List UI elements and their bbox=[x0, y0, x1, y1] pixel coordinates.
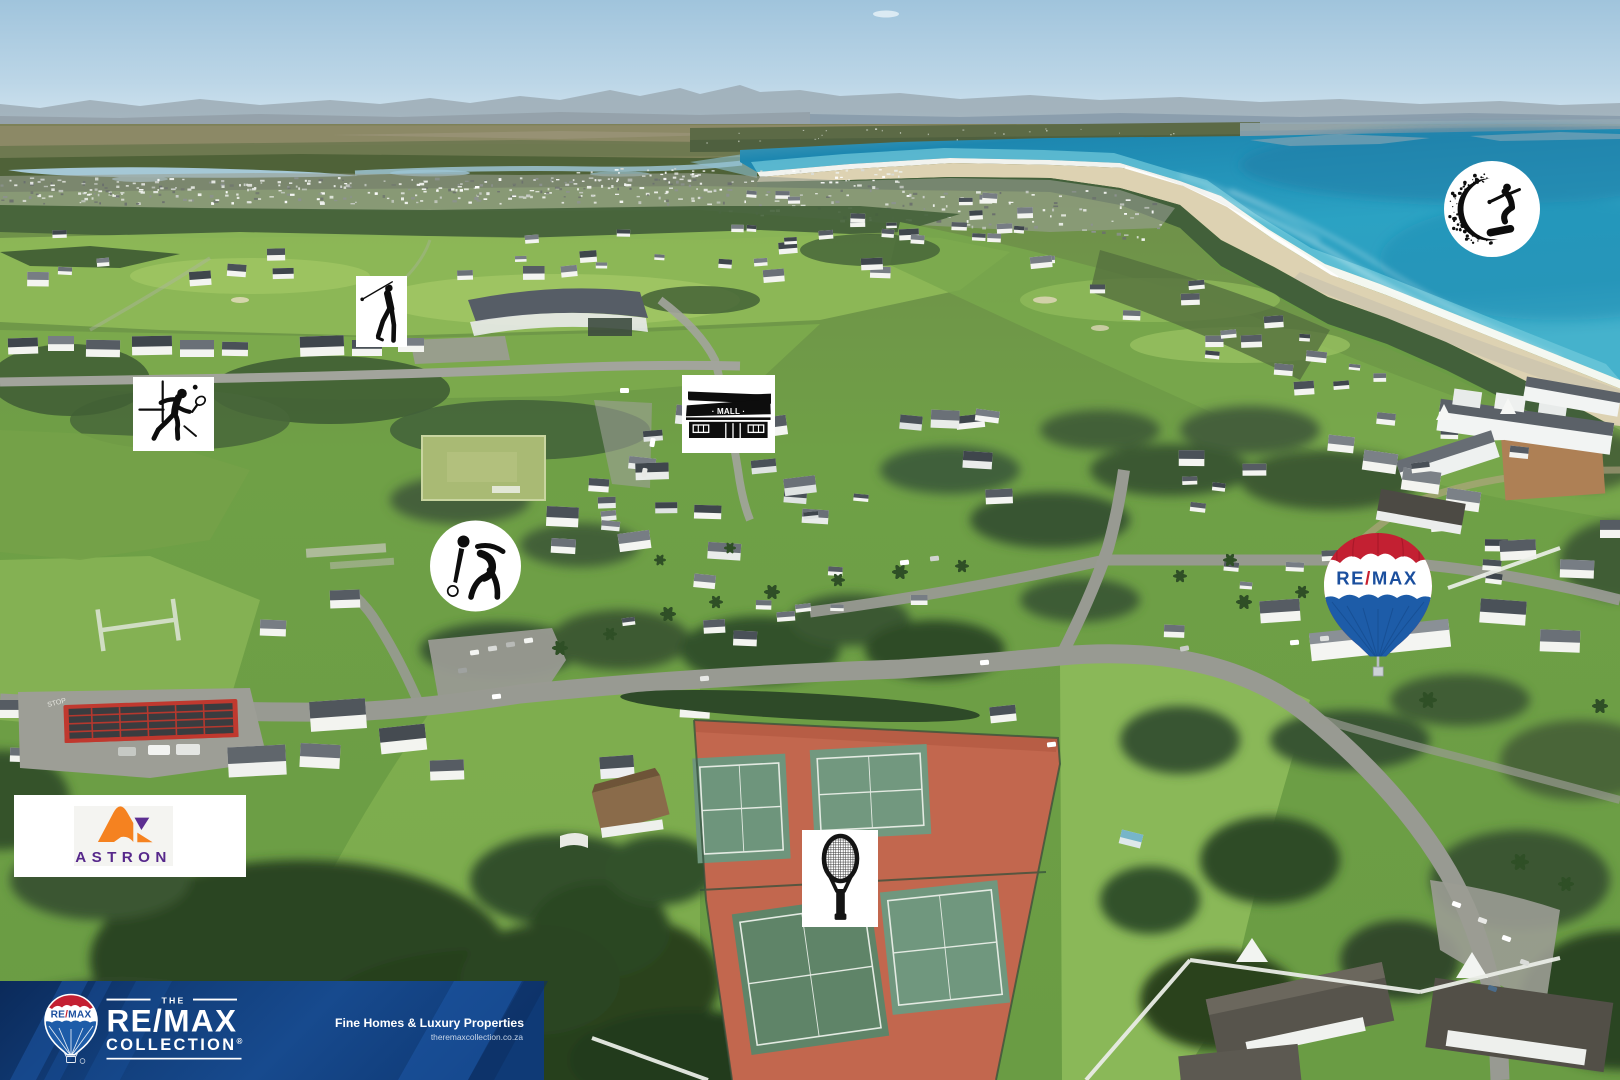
svg-text:RE/MAX: RE/MAX bbox=[51, 1010, 92, 1021]
svg-text:theremaxcollection.co.za: theremaxcollection.co.za bbox=[431, 1032, 524, 1042]
svg-text:· MALL ·: · MALL · bbox=[712, 407, 745, 416]
svg-text:ASTRON: ASTRON bbox=[75, 849, 172, 866]
svg-text:RE/MAX: RE/MAX bbox=[107, 1003, 238, 1039]
svg-text:Fine Homes & Luxury Properties: Fine Homes & Luxury Properties bbox=[335, 1016, 524, 1030]
svg-text:RE/MAX: RE/MAX bbox=[1336, 568, 1418, 589]
svg-text:COLLECTION®: COLLECTION® bbox=[106, 1036, 245, 1054]
